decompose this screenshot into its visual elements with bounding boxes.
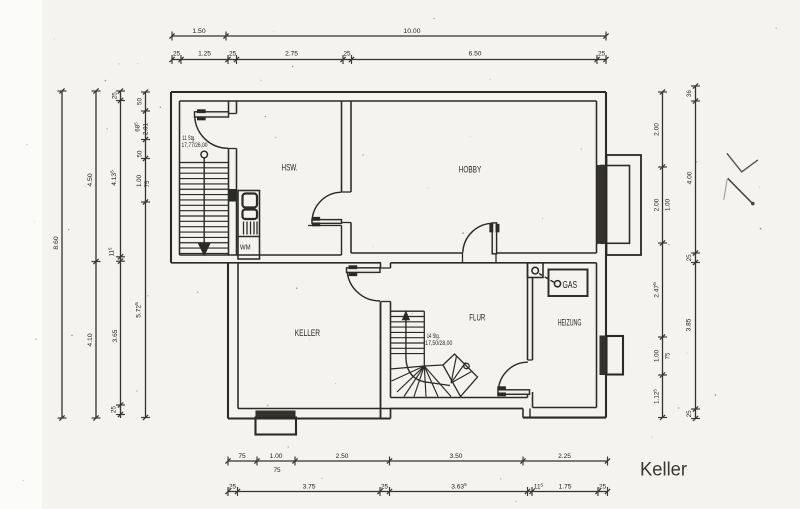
svg-text:25: 25: [381, 484, 389, 491]
svg-text:2.75: 2.75: [285, 51, 298, 58]
svg-text:75: 75: [238, 453, 246, 460]
svg-text:2.00: 2.00: [654, 123, 661, 136]
svg-text:WM: WM: [240, 242, 251, 251]
svg-text:Keller: Keller: [640, 460, 688, 481]
svg-text:25: 25: [173, 51, 181, 58]
svg-text:36: 36: [686, 90, 693, 97]
svg-text:75: 75: [665, 352, 672, 359]
svg-text:2.01: 2.01: [143, 122, 150, 135]
svg-text:3.85: 3.85: [686, 318, 693, 331]
svg-text:25: 25: [686, 254, 693, 261]
svg-text:HEIZUNG: HEIZUNG: [558, 317, 582, 327]
svg-text:50: 50: [137, 98, 144, 105]
svg-text:1.75: 1.75: [559, 484, 572, 491]
svg-text:75: 75: [273, 467, 281, 474]
svg-text:25: 25: [686, 410, 693, 417]
svg-text:2.50: 2.50: [336, 453, 349, 460]
svg-text:3.65: 3.65: [112, 329, 119, 342]
svg-text:1.50: 1.50: [192, 28, 205, 35]
svg-text:1.00: 1.00: [665, 198, 672, 211]
svg-text:HSW.: HSW.: [282, 162, 298, 172]
svg-text:17,50/28,00: 17,50/28,00: [425, 340, 452, 347]
svg-text:1.00: 1.00: [654, 349, 661, 362]
svg-text:HOBBY: HOBBY: [459, 165, 482, 175]
svg-text:3.50: 3.50: [450, 453, 463, 460]
svg-text:50: 50: [137, 150, 144, 157]
svg-text:25: 25: [229, 51, 237, 58]
svg-text:1.25: 1.25: [198, 51, 211, 58]
svg-text:4.00: 4.00: [687, 171, 694, 184]
svg-text:1.00: 1.00: [270, 453, 283, 460]
svg-text:3.75: 3.75: [303, 484, 316, 491]
svg-text:FLUR: FLUR: [469, 313, 485, 323]
svg-text:KELLER: KELLER: [295, 328, 321, 338]
svg-text:GAS: GAS: [563, 280, 578, 291]
svg-text:8.60: 8.60: [53, 236, 60, 249]
svg-text:2.25: 2.25: [558, 453, 571, 460]
svg-text:6.50: 6.50: [469, 51, 482, 58]
svg-text:25: 25: [229, 484, 237, 491]
svg-text:25: 25: [598, 51, 606, 58]
svg-text:25: 25: [599, 484, 607, 491]
svg-text:25: 25: [343, 51, 351, 58]
svg-text:4.10: 4.10: [87, 333, 94, 346]
svg-text:4.50: 4.50: [87, 173, 94, 186]
svg-text:17,77/26,00: 17,77/26,00: [182, 142, 208, 149]
svg-text:75: 75: [144, 180, 151, 187]
svg-text:2.00: 2.00: [654, 198, 661, 211]
svg-text:10.00: 10.00: [403, 28, 420, 35]
svg-text:11 Stg.: 11 Stg.: [182, 135, 195, 142]
svg-text:25: 25: [111, 406, 118, 413]
svg-text:1.00: 1.00: [136, 174, 143, 187]
svg-text:25: 25: [112, 92, 119, 99]
